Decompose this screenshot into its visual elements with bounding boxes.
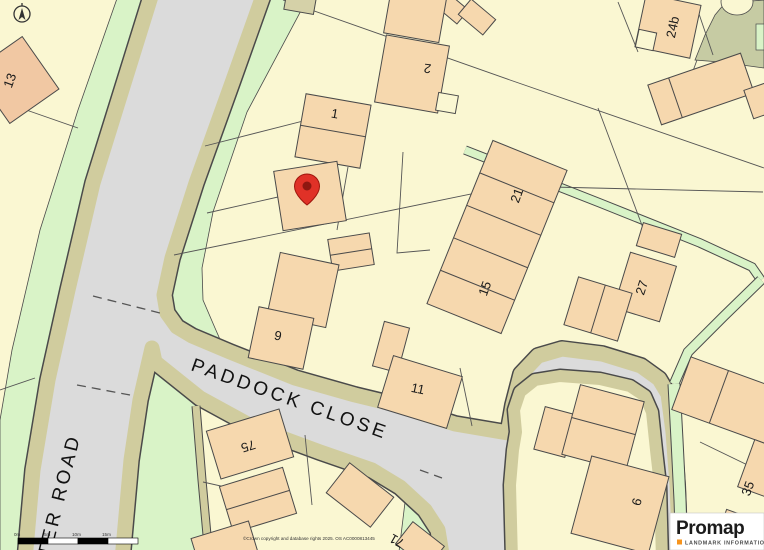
scale-label-0: 0m: [14, 532, 21, 537]
scale-label-10: 10m: [72, 532, 81, 537]
promap-logo: Promap LANDMARK INFORMATION: [670, 513, 764, 550]
map-viewport[interactable]: 13 2 1 24b 21 15 27 9 11 75 71 6 35 PADD…: [0, 0, 764, 550]
promap-logo-brand: Promap: [676, 518, 744, 539]
promap-logo-tagline: LANDMARK INFORMATION: [685, 541, 764, 547]
scale-label-5: 5m: [44, 532, 51, 537]
copyright-text: ©Crown copyright and database rights 202…: [243, 535, 375, 541]
map-canvas[interactable]: 13 2 1 24b 21 15 27 9 11 75 71 6 35 PADD…: [0, 0, 764, 550]
promap-logo-bullet-icon: [677, 540, 682, 545]
scale-label-15: 15m: [102, 532, 111, 537]
